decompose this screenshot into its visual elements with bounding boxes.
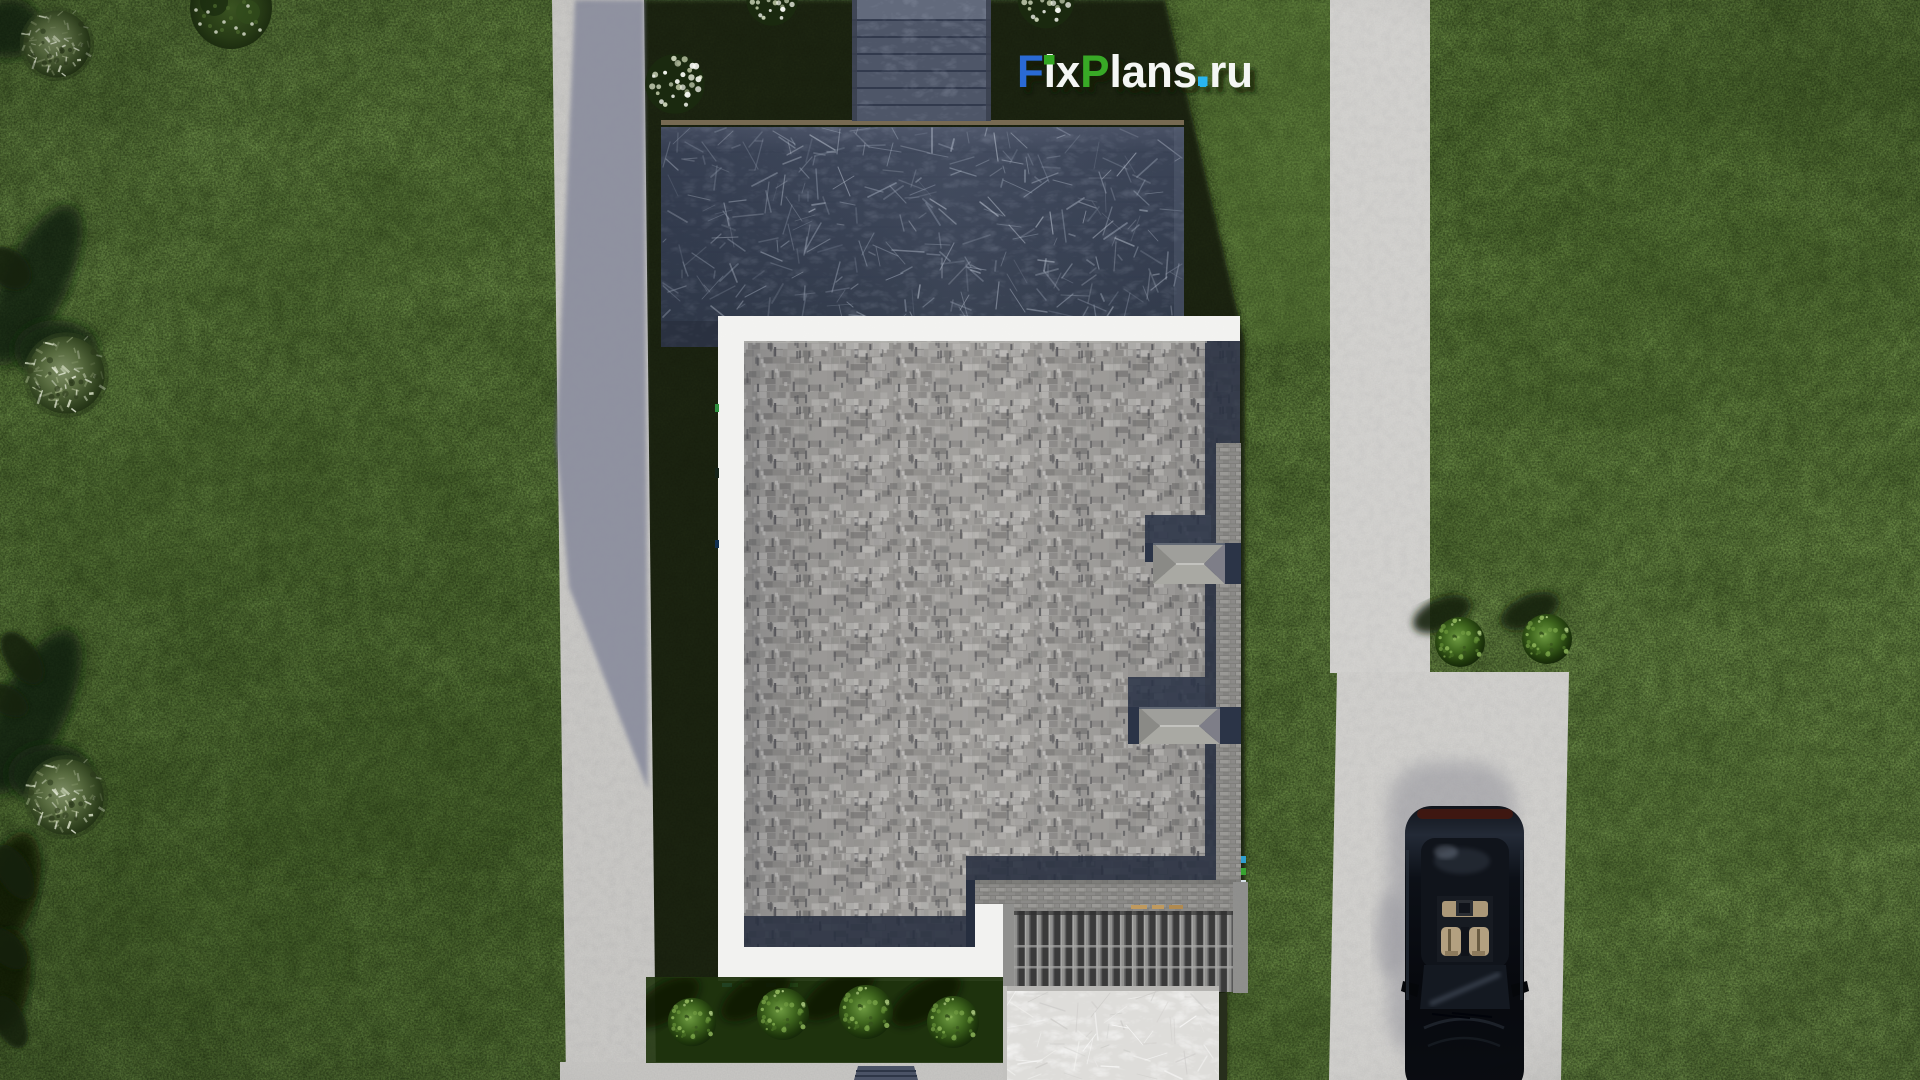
svg-text:FixPlans.ru: FixPlans.ru [1017, 46, 1253, 97]
